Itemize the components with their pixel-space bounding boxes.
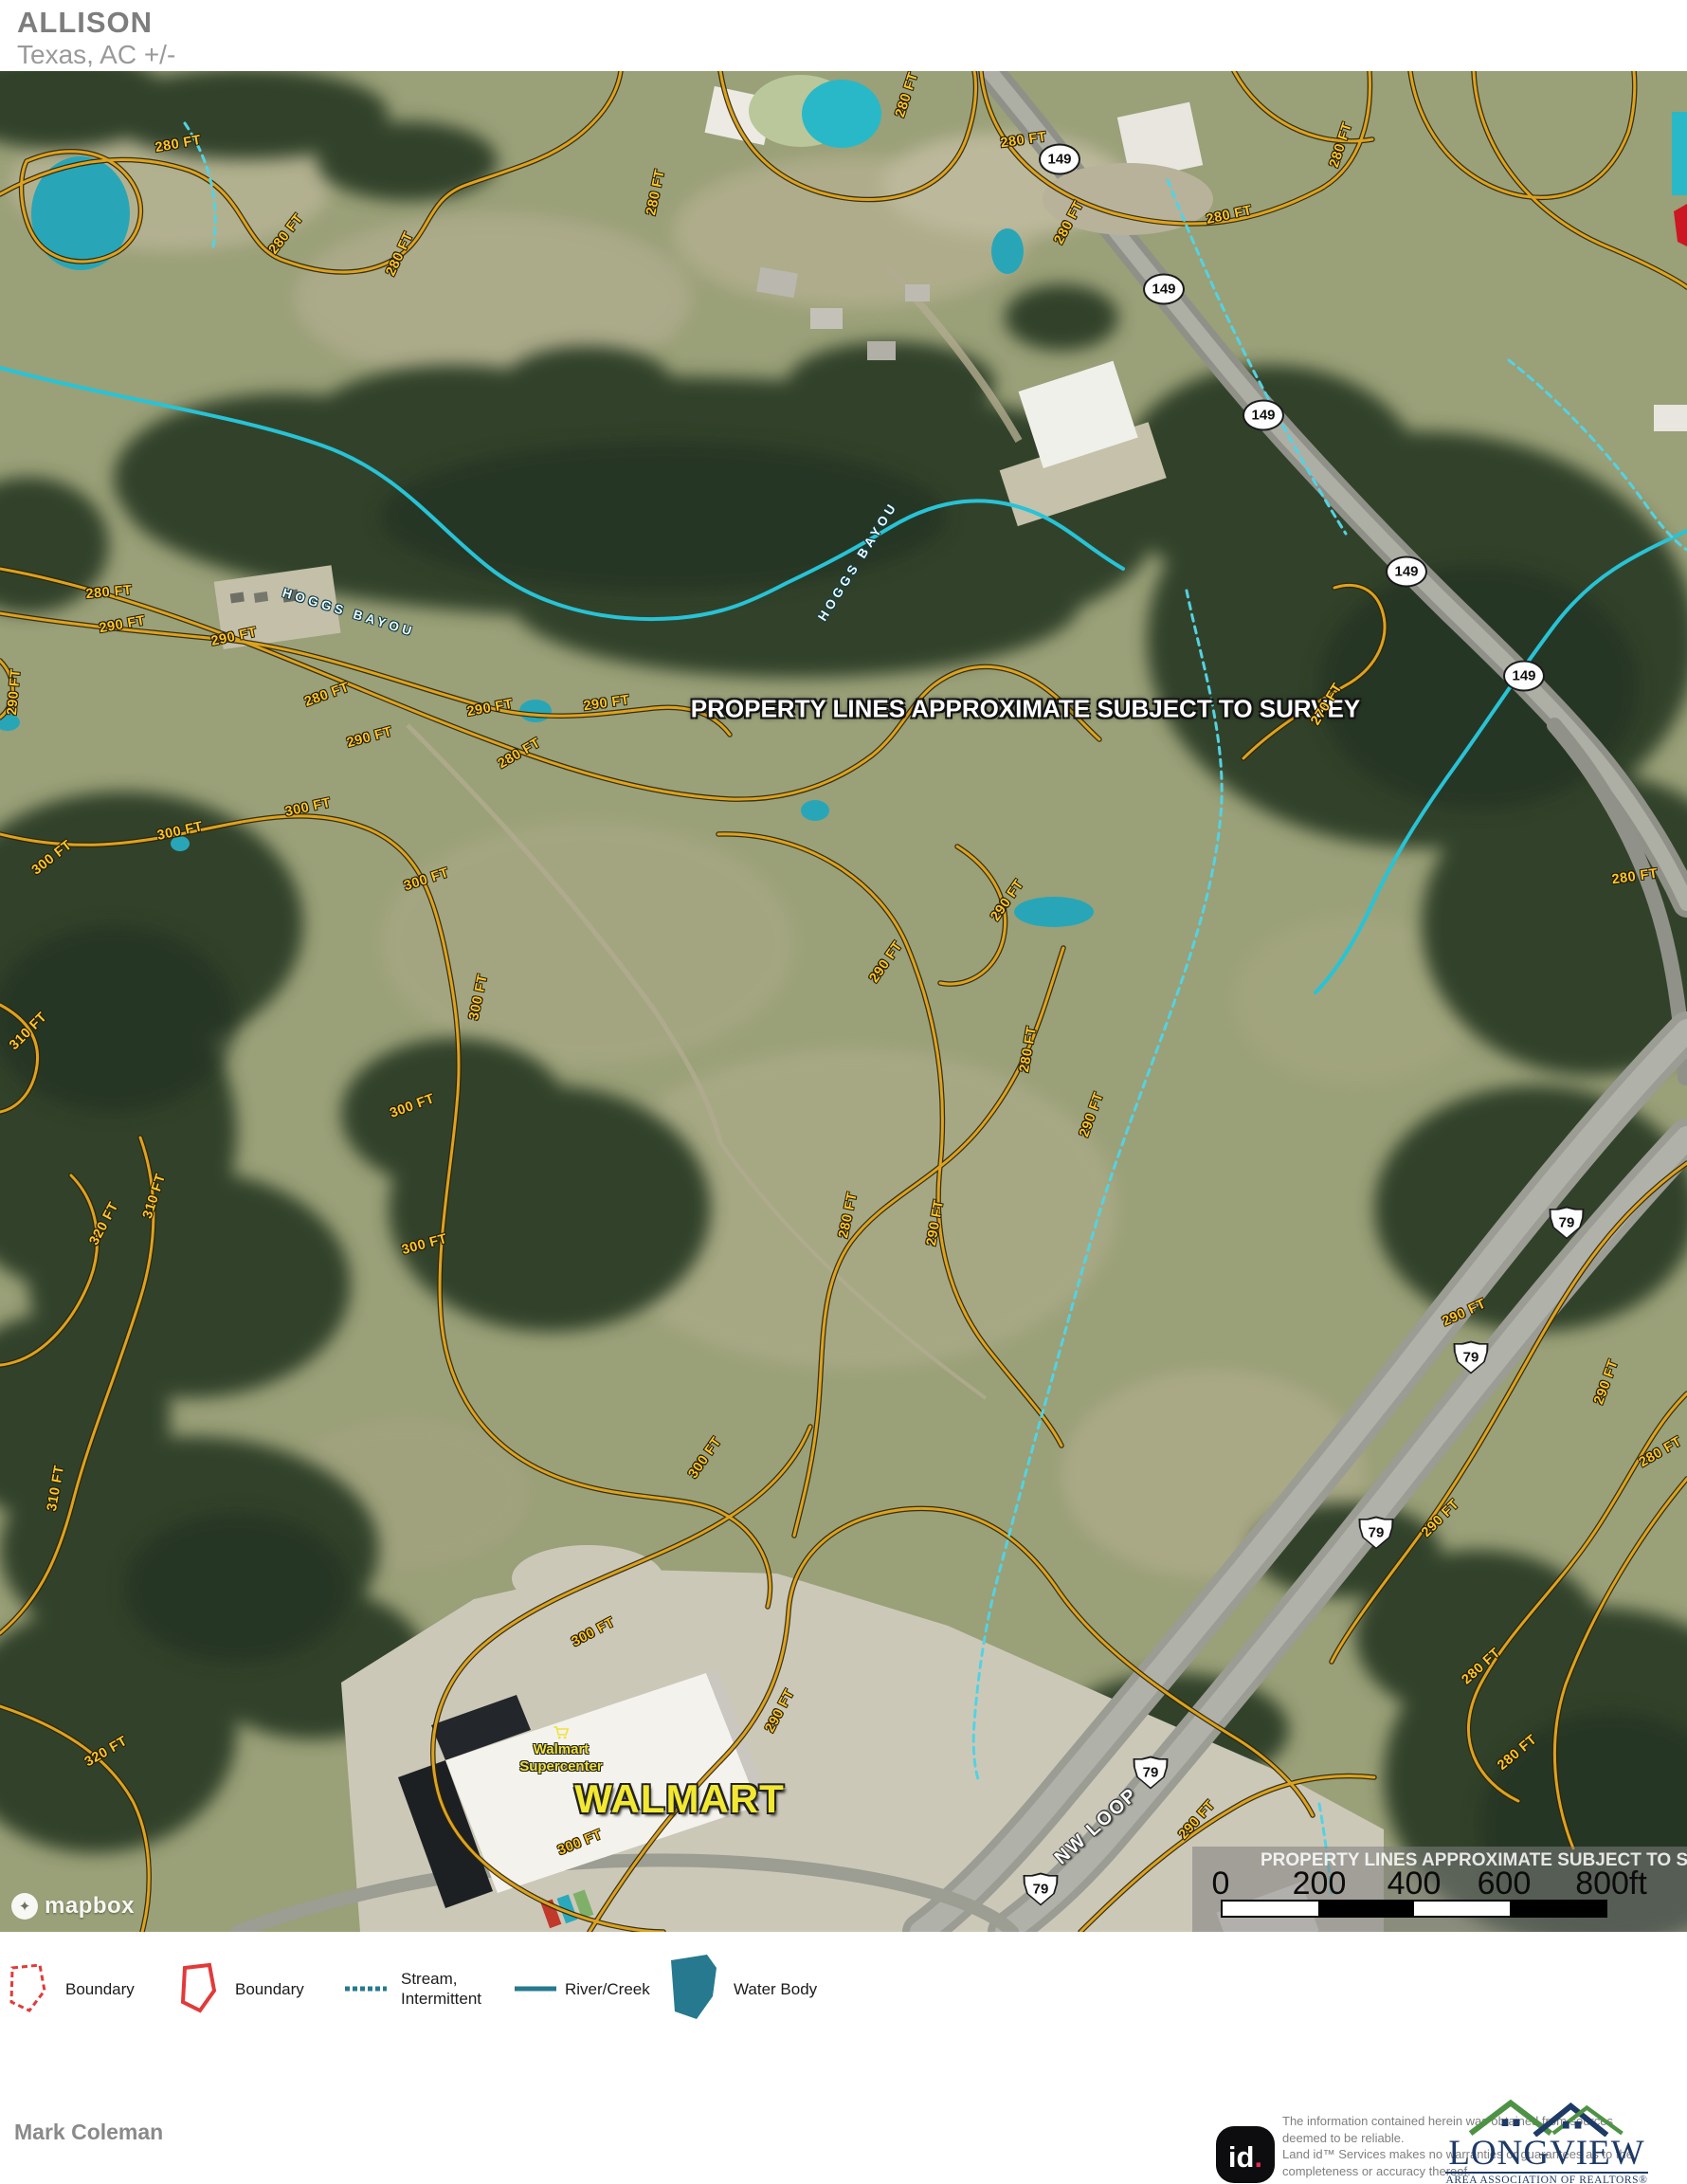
contour-label: 290 FT	[866, 938, 905, 985]
contour-label: 300 FT	[388, 1091, 436, 1121]
contour-label: 280 FT	[496, 736, 543, 772]
page: { "header": { "title": "ALLISON", "subti…	[0, 0, 1687, 2184]
legend-item-boundary-dashed: Boundary	[6, 1932, 135, 2046]
contour-label: 280 FT	[266, 211, 307, 257]
stream-label: HOGGS BAYOU	[815, 499, 900, 623]
contour-label: 290 FT	[1077, 1090, 1107, 1138]
land-id-wordmark: id	[1228, 2132, 1255, 2183]
contour-label: 280 FT	[1495, 1732, 1540, 1774]
legend-item-river-creek: River/Creek	[513, 1932, 650, 2046]
legend-label: Boundary	[65, 1979, 135, 1999]
contour-label: 280 FT	[1205, 203, 1253, 227]
mapbox-wordmark: mapbox	[45, 1893, 135, 1920]
contour-label: 300 FT	[555, 1827, 604, 1858]
contour-label: 280 FT	[893, 71, 921, 119]
shield-79: 79	[1134, 1756, 1169, 1790]
survey-disclaimer-label: PROPERTY LINES APPROXIMATE SUBJECT TO SU…	[691, 695, 1360, 724]
stream-intermittent-icon	[343, 1983, 389, 1994]
contour-label: 300 FT	[283, 795, 332, 820]
contour-label: 300 FT	[685, 1434, 724, 1481]
contour-label: 280 FT	[1017, 1026, 1040, 1074]
contour-label: 290 FT	[762, 1687, 797, 1736]
shield-149: 149	[1243, 400, 1284, 431]
walmart-supercenter-line1: Walmart	[534, 1741, 590, 1757]
contour-label: 280 FT	[836, 1191, 861, 1239]
contour-label: 290 FT	[345, 724, 393, 751]
scale-tick: 600	[1478, 1865, 1532, 1902]
scale-tick: 200	[1293, 1865, 1347, 1902]
contour-label: 290 FT	[466, 697, 515, 719]
contour-label: 280 FT	[1051, 199, 1086, 247]
longview-realtors-logo: LONGVIEW AREA ASSOCIATION OF REALTORS®	[1405, 2095, 1687, 2184]
contour-label: 300 FT	[466, 973, 491, 1021]
longview-wordmark: LONGVIEW	[1405, 2137, 1687, 2171]
contour-label: 300 FT	[29, 838, 75, 879]
contour-label: 290 FT	[1440, 1296, 1488, 1329]
legend-label: River/Creek	[565, 1979, 650, 1999]
legend-label: Intermittent	[401, 1990, 481, 2008]
contour-label: 280 FT	[302, 680, 351, 710]
longview-houses-icon	[1452, 2095, 1642, 2137]
road-label: NW LOOP	[1051, 1784, 1143, 1869]
walmart-poi-label: WALMART	[574, 1776, 785, 1822]
shield-79: 79	[1359, 1517, 1394, 1550]
mapbox-logo[interactable]: ✦ mapbox	[11, 1893, 135, 1920]
page-title: ALLISON	[17, 6, 153, 40]
legend-label: Boundary	[235, 1979, 304, 1999]
contour-label: 280 FT	[644, 168, 668, 216]
contour-label: 280 FT	[1000, 130, 1048, 152]
contour-label: 310 FT	[7, 1010, 50, 1053]
shield-149: 149	[1039, 144, 1080, 175]
contour-label: 300 FT	[400, 1231, 448, 1258]
contour-label: 280 FT	[1611, 866, 1660, 888]
shield-149: 149	[1386, 556, 1427, 588]
legend-item-water-body: Water Body	[667, 1932, 817, 2046]
contour-label: 290 FT	[1419, 1497, 1462, 1540]
contour-label: 300 FT	[402, 865, 450, 894]
river-creek-icon	[513, 1983, 558, 1994]
contour-label: 300 FT	[570, 1614, 618, 1649]
contour-label: 290 FT	[99, 613, 147, 636]
legend-label: Stream,	[401, 1970, 458, 1988]
scale-bar-panel: PROPERTY LINES APPROXIMATE SUBJECT TO S …	[1192, 1847, 1687, 1932]
boundary-solid-icon	[178, 1961, 218, 2016]
mapbox-icon: ✦	[11, 1893, 38, 1920]
land-id-logo: id.	[1216, 2126, 1275, 2183]
contour-label: 320 FT	[86, 1200, 121, 1248]
shield-79: 79	[1454, 1341, 1489, 1374]
contour-label: 310 FT	[140, 1172, 169, 1220]
contour-label: 290 FT	[924, 1199, 947, 1247]
contour-label: 280 FT	[1637, 1434, 1684, 1470]
shield-149: 149	[1503, 661, 1545, 692]
water-body-icon	[667, 1953, 720, 2025]
shield-149: 149	[1143, 274, 1185, 305]
longview-tagline: AREA ASSOCIATION OF REALTORS®	[1445, 2172, 1647, 2184]
land-id-dot: .	[1254, 2132, 1262, 2183]
contour-label: 290 FT	[5, 668, 24, 716]
walmart-supercenter-label: Walmart Supercenter	[519, 1726, 603, 1775]
scale-bar	[1221, 1900, 1607, 1918]
cart-icon	[553, 1726, 570, 1739]
legend: Boundary Boundary Stream, Intermittent R…	[0, 1932, 1687, 2076]
contour-label: 290 FT	[209, 625, 258, 649]
scale-tick: 0	[1212, 1865, 1230, 1902]
shield-79: 79	[1024, 1873, 1059, 1906]
contour-label: 280 FT	[1327, 120, 1355, 169]
contour-label: 290 FT	[988, 877, 1026, 923]
contour-label: 310 FT	[45, 1465, 67, 1513]
broker-name: Mark Coleman	[14, 2120, 163, 2145]
contour-label: 280 FT	[1459, 1646, 1503, 1688]
map-label-layer: PROPERTY LINES APPROXIMATE SUBJECT TO SU…	[0, 71, 1687, 1932]
contour-label: 290 FT	[1176, 1797, 1219, 1842]
map-canvas[interactable]: PROPERTY LINES APPROXIMATE SUBJECT TO SU…	[0, 71, 1687, 1932]
contour-label: 290 FT	[583, 693, 631, 715]
contour-label: 280 FT	[85, 583, 133, 602]
stream-label: HOGGS BAYOU	[281, 586, 417, 640]
legend-item-stream-intermittent: Stream, Intermittent	[343, 1932, 481, 2046]
contour-label: 290 FT	[1591, 1357, 1622, 1406]
scale-tick: 400	[1388, 1865, 1442, 1902]
shield-79: 79	[1550, 1207, 1585, 1240]
walmart-supercenter-line2: Supercenter	[519, 1758, 603, 1774]
legend-item-boundary-solid: Boundary	[178, 1932, 304, 2046]
scale-tick: 800ft	[1575, 1865, 1647, 1902]
contour-label: 280 FT	[154, 133, 203, 155]
page-subtitle: Texas, AC +/-	[17, 40, 175, 70]
contour-label: 300 FT	[155, 819, 204, 844]
legend-label: Water Body	[734, 1979, 817, 1999]
contour-label: 320 FT	[82, 1734, 130, 1770]
boundary-dashed-icon	[6, 1961, 49, 2016]
contour-label: 280 FT	[383, 229, 416, 278]
